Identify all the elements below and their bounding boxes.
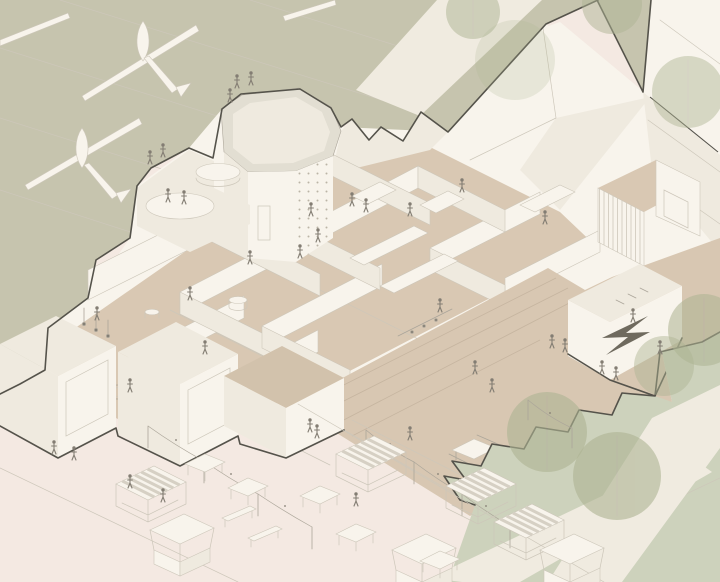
illustration-stage: Axonometric cutaway drawing of a communi… [0,0,720,582]
axonometric-scene: Axonometric cutaway drawing of a communi… [0,0,720,582]
